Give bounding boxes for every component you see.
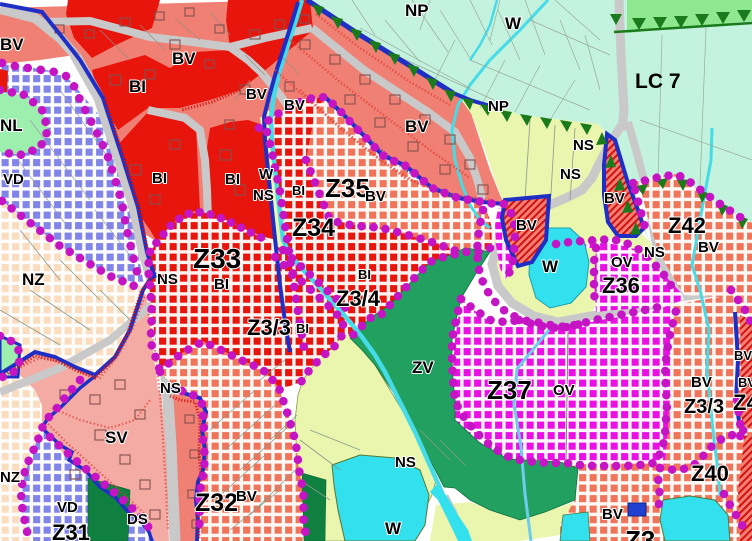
svg-text:BV: BV xyxy=(738,375,752,390)
svg-text:OV: OV xyxy=(553,382,575,399)
svg-text:Z34: Z34 xyxy=(292,214,335,242)
svg-text:Z36: Z36 xyxy=(602,273,640,298)
svg-text:BI: BI xyxy=(225,171,240,188)
svg-text:Z42: Z42 xyxy=(668,213,706,238)
svg-text:NS: NS xyxy=(253,187,274,204)
svg-text:W: W xyxy=(505,14,522,33)
svg-text:SV: SV xyxy=(105,428,128,447)
svg-text:BI: BI xyxy=(292,183,305,198)
svg-text:Z3/3: Z3/3 xyxy=(684,396,724,418)
svg-text:NS: NS xyxy=(160,380,181,397)
svg-text:VD: VD xyxy=(57,499,78,516)
svg-text:BI: BI xyxy=(296,321,309,336)
svg-text:OV: OV xyxy=(611,254,633,271)
svg-text:BV: BV xyxy=(172,49,196,68)
svg-text:BV: BV xyxy=(246,86,267,103)
svg-text:Z37: Z37 xyxy=(487,375,532,405)
svg-text:NP: NP xyxy=(488,98,509,115)
svg-text:Z35: Z35 xyxy=(325,173,370,203)
svg-text:NS: NS xyxy=(395,454,416,471)
svg-text:BI: BI xyxy=(358,267,371,282)
svg-text:NS: NS xyxy=(644,244,665,261)
svg-text:Z32: Z32 xyxy=(195,489,238,517)
svg-text:LC 7: LC 7 xyxy=(635,70,681,93)
svg-text:NS: NS xyxy=(157,271,178,288)
svg-text:BV: BV xyxy=(698,239,719,256)
svg-text:BV: BV xyxy=(236,488,257,505)
svg-text:W: W xyxy=(385,519,402,538)
svg-text:BV: BV xyxy=(284,97,305,114)
svg-text:Z33: Z33 xyxy=(193,243,241,274)
svg-text:BV: BV xyxy=(602,506,623,523)
svg-text:BV: BV xyxy=(365,188,386,205)
svg-text:NP: NP xyxy=(405,1,429,20)
svg-text:BI: BI xyxy=(214,276,229,293)
svg-text:VD: VD xyxy=(3,171,24,188)
svg-text:BV: BV xyxy=(691,374,712,391)
svg-text:BI: BI xyxy=(152,170,167,187)
svg-text:BV: BV xyxy=(516,217,537,234)
svg-text:Z3: Z3 xyxy=(625,525,655,541)
svg-text:Z40: Z40 xyxy=(691,461,729,486)
svg-text:Z3/3: Z3/3 xyxy=(247,315,291,340)
svg-text:NZ: NZ xyxy=(22,270,45,289)
svg-text:ZV: ZV xyxy=(412,358,434,377)
svg-text:DS: DS xyxy=(127,511,148,528)
svg-text:Z3/4: Z3/4 xyxy=(336,286,381,311)
svg-text:Z31: Z31 xyxy=(52,520,90,541)
svg-text:BV: BV xyxy=(0,35,24,54)
svg-text:BV: BV xyxy=(405,117,429,136)
svg-text:NZ: NZ xyxy=(0,469,20,486)
svg-text:W: W xyxy=(259,166,274,183)
svg-text:BV: BV xyxy=(734,348,752,363)
svg-text:Z4: Z4 xyxy=(733,390,752,415)
svg-text:NL: NL xyxy=(0,116,23,135)
svg-text:NS: NS xyxy=(573,137,594,154)
svg-text:NS: NS xyxy=(560,166,581,183)
svg-text:BV: BV xyxy=(604,190,625,207)
svg-text:BI: BI xyxy=(129,77,146,96)
svg-text:W: W xyxy=(542,257,559,276)
